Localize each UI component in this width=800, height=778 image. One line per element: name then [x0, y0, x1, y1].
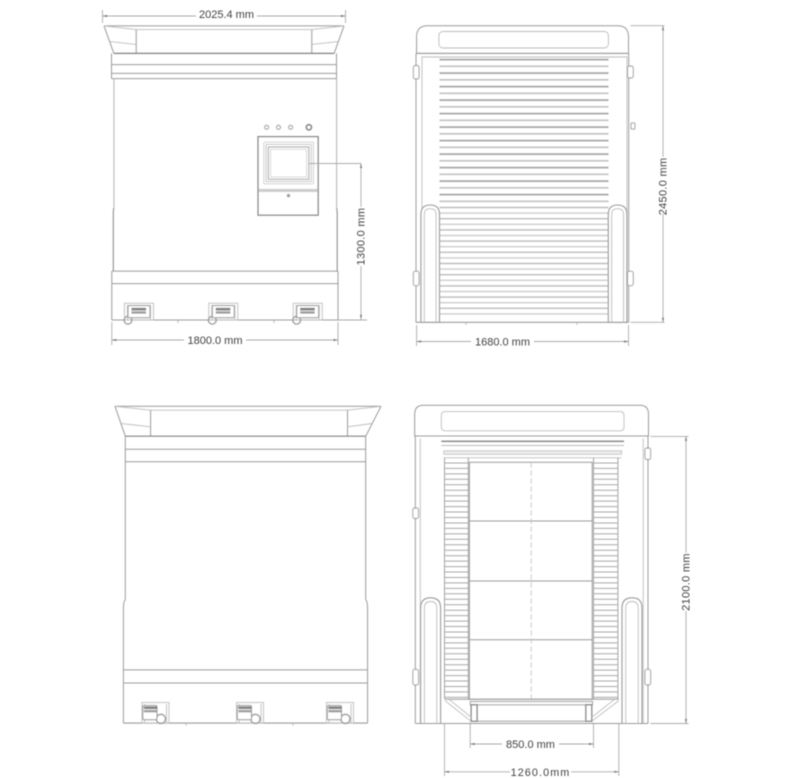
svg-text:2450.0 mm: 2450.0 mm	[658, 158, 670, 216]
svg-text:2100.0 mm: 2100.0 mm	[681, 553, 693, 611]
svg-text:1800.0 mm: 1800.0 mm	[187, 335, 242, 347]
svg-text:2025.4 mm: 2025.4 mm	[199, 9, 254, 21]
svg-text:1260.0mm: 1260.0mm	[511, 767, 571, 778]
svg-text:1300.0 mm: 1300.0 mm	[356, 208, 368, 266]
svg-text:1680.0 mm: 1680.0 mm	[475, 337, 530, 349]
svg-text:850.0 mm: 850.0 mm	[506, 739, 555, 751]
